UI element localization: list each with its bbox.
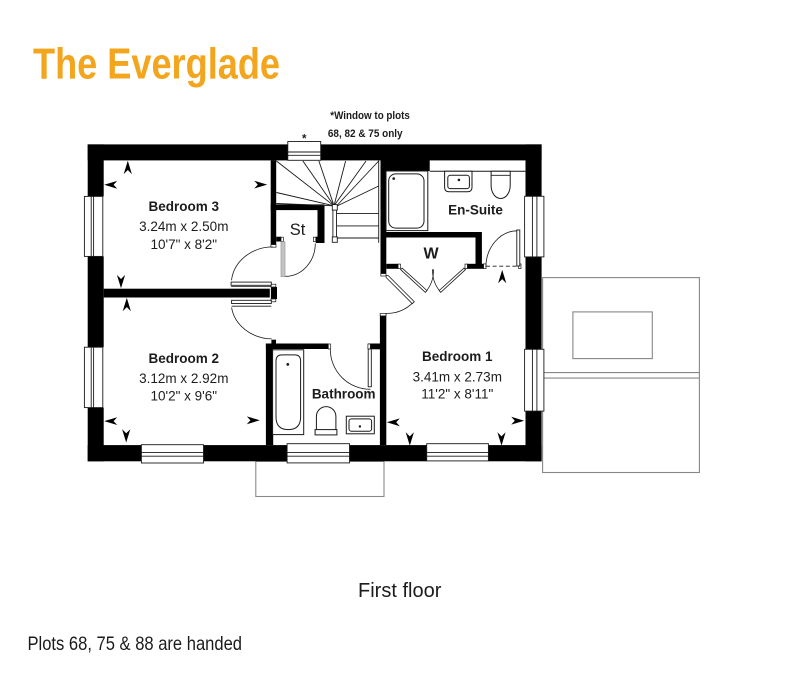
svg-text:10'2" x 9'6": 10'2" x 9'6" (151, 389, 218, 404)
svg-text:First floor: First floor (358, 580, 442, 602)
svg-text:Bedroom 2: Bedroom 2 (149, 351, 220, 366)
svg-text:En-Suite: En-Suite (448, 202, 503, 217)
svg-text:Bedroom 3: Bedroom 3 (149, 199, 220, 214)
svg-text:St: St (290, 221, 306, 239)
svg-text:3.41m x 2.73m: 3.41m x 2.73m (413, 370, 502, 385)
svg-text:The Everglade: The Everglade (33, 41, 280, 89)
svg-text:3.24m x 2.50m: 3.24m x 2.50m (139, 219, 228, 234)
svg-text:11'2" x 8'11": 11'2" x 8'11" (421, 387, 493, 402)
svg-text:10'7" x 8'2": 10'7" x 8'2" (151, 237, 218, 252)
svg-text:Bedroom 1: Bedroom 1 (422, 349, 493, 364)
svg-text:Bathroom: Bathroom (312, 386, 376, 401)
svg-text:68, 82 & 75 only: 68, 82 & 75 only (328, 128, 403, 140)
svg-text:*Window to plots: *Window to plots (330, 110, 410, 122)
svg-text:Plots 68, 75 & 88 are handed: Plots 68, 75 & 88 are handed (28, 633, 243, 655)
svg-text:W: W (423, 245, 439, 262)
svg-text:3.12m x 2.92m: 3.12m x 2.92m (139, 371, 228, 386)
